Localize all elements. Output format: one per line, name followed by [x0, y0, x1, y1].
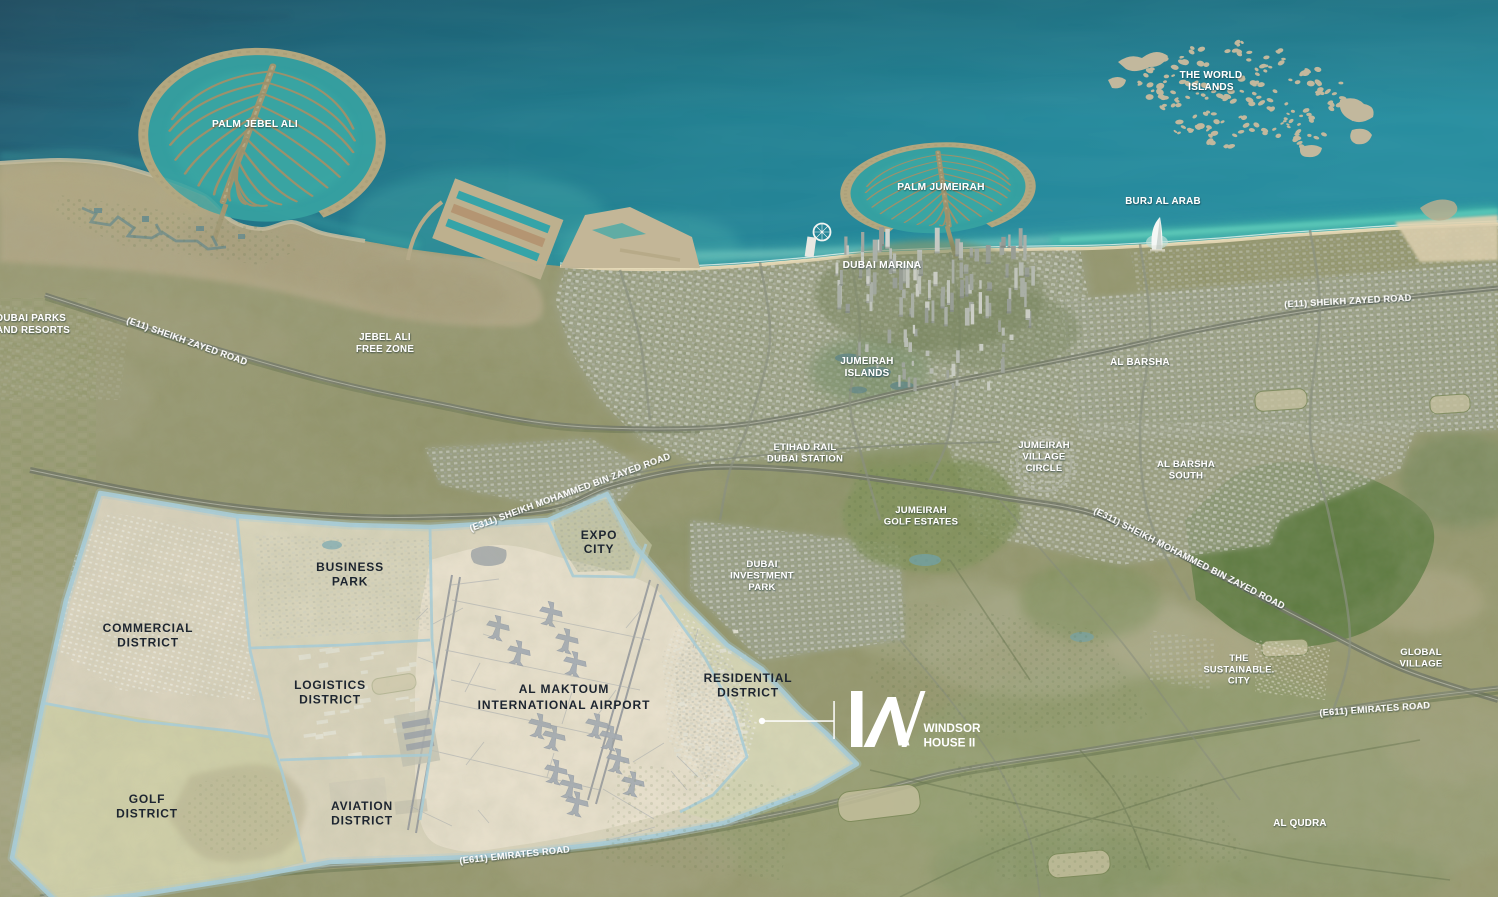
svg-text:EXPOCITY: EXPOCITY: [581, 528, 618, 556]
svg-text:JUMEIRAHISLANDS: JUMEIRAHISLANDS: [840, 356, 893, 379]
svg-text:ETIHAD RAILDUBAI STATION: ETIHAD RAILDUBAI STATION: [767, 442, 843, 465]
svg-text:PALM JEBEL ALI: PALM JEBEL ALI: [212, 119, 298, 130]
svg-text:AVIATIONDISTRICT: AVIATIONDISTRICT: [331, 799, 393, 828]
svg-text:PALM JUMEIRAH: PALM JUMEIRAH: [897, 182, 984, 193]
svg-text:THE WORLDISLANDS: THE WORLDISLANDS: [1180, 70, 1243, 93]
svg-text:DUBAI PARKSAND RESORTS: DUBAI PARKSAND RESORTS: [0, 313, 70, 336]
svg-text:AL BARSHA: AL BARSHA: [1110, 357, 1170, 368]
svg-text:BURJ AL ARAB: BURJ AL ARAB: [1125, 196, 1201, 207]
svg-text:DUBAI MARINA: DUBAI MARINA: [843, 260, 922, 271]
svg-text:JEBEL ALIFREE ZONE: JEBEL ALIFREE ZONE: [356, 332, 415, 355]
svg-text:AL QUDRA: AL QUDRA: [1273, 818, 1327, 829]
svg-text:HOUSE II: HOUSE II: [924, 736, 976, 750]
svg-text:GLOBALVILLAGE: GLOBALVILLAGE: [1400, 647, 1443, 670]
svg-text:JUMEIRAHVILLAGECIRCLE: JUMEIRAHVILLAGECIRCLE: [1018, 440, 1070, 474]
svg-text:LOGISTICSDISTRICT: LOGISTICSDISTRICT: [294, 678, 366, 707]
svg-text:WINDSOR: WINDSOR: [924, 721, 981, 735]
